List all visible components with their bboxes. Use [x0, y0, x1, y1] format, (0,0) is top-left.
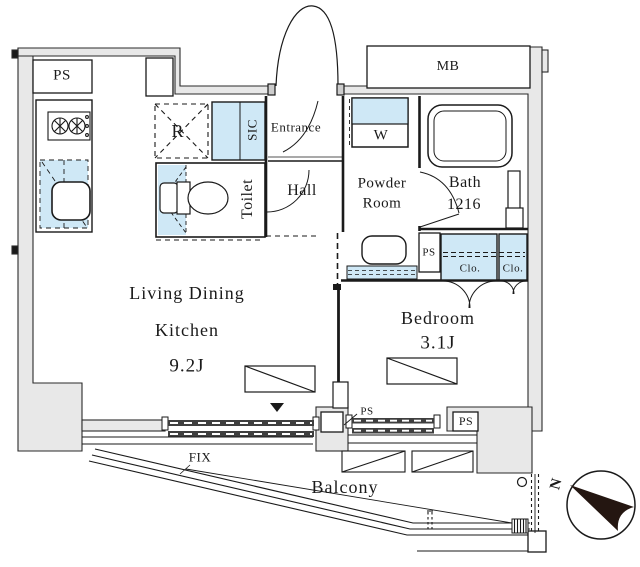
washbasin	[362, 236, 406, 264]
ps-right-label: PS	[459, 415, 473, 427]
hall	[266, 96, 343, 237]
duct-column	[146, 58, 173, 96]
ldk-size-label: 9.2J	[169, 357, 204, 376]
fix-window-label: FIX	[189, 451, 211, 464]
balcony-divider	[428, 512, 432, 531]
closet-right-label: Clo.	[503, 264, 524, 275]
drain-hatch	[512, 519, 528, 533]
kitchen-counter	[36, 100, 92, 232]
door-jamb	[337, 84, 344, 95]
bath-door-leaf	[420, 214, 459, 227]
bath-label: Bath	[449, 175, 481, 191]
entry-marker	[270, 403, 284, 412]
bathtub	[428, 105, 512, 167]
ps-top-left-label: PS	[53, 69, 71, 84]
entrance-label: Entrance	[271, 121, 321, 134]
refrigerator-label: R	[171, 122, 184, 140]
wall-step	[333, 382, 348, 408]
furniture	[245, 358, 457, 392]
partition-wall	[333, 233, 348, 408]
closet-left-label: Clo.	[460, 264, 481, 275]
washer-label: W	[374, 129, 389, 144]
sink	[52, 182, 90, 220]
bath-size-label: 1216	[447, 197, 481, 213]
powder-room-label-2: Room	[363, 197, 402, 212]
bedroom-size-label: 3.1J	[420, 334, 455, 353]
compass	[567, 471, 635, 539]
ldk-label-1: Living Dining	[129, 284, 245, 302]
bedroom-label: Bedroom	[401, 309, 475, 327]
hall-label: Hall	[287, 183, 317, 199]
entrance-door-swing-arc	[276, 6, 338, 86]
toilet-label: Toilet	[240, 179, 256, 219]
door-jamb	[268, 84, 275, 95]
basin-counter	[347, 266, 417, 279]
floor-plan: PS MB Entrance SIC R Toilet Hall W Powde…	[0, 0, 640, 567]
stove	[48, 112, 90, 140]
pipe-shaft-mid-box	[321, 412, 343, 432]
drain-circle	[518, 478, 527, 487]
closet-door-arcs	[443, 281, 526, 308]
toilet-fixture	[160, 182, 228, 214]
balcony-label: Balcony	[312, 478, 379, 496]
ps-bath-label: PS	[422, 248, 435, 259]
meter-box-label: MB	[437, 60, 460, 74]
ldk-label-2: Kitchen	[155, 321, 219, 339]
balcony-end-post	[528, 531, 546, 552]
ps-mid-label: PS	[360, 407, 373, 418]
shoe-closet-label: SIC	[246, 119, 259, 141]
powder-room-label-1: Powder	[358, 177, 407, 192]
